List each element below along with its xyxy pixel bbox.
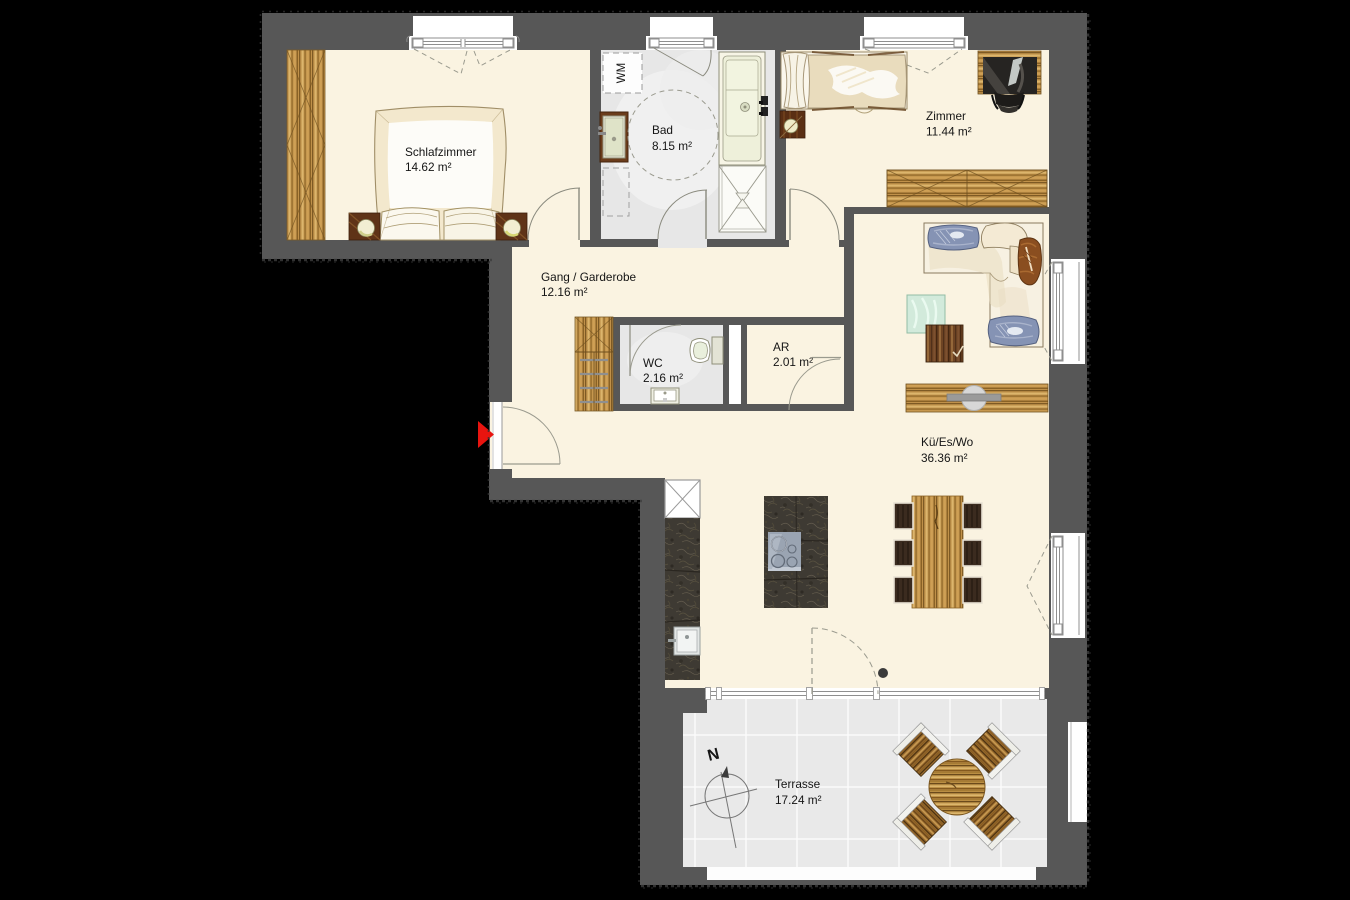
svg-text:11.44 m²: 11.44 m²: [926, 125, 972, 139]
svg-text:WM: WM: [616, 63, 628, 83]
svg-text:Kü/Es/Wo: Kü/Es/Wo: [921, 435, 974, 449]
svg-text:Bad: Bad: [652, 123, 673, 137]
svg-text:8.15 m²: 8.15 m²: [652, 139, 692, 153]
svg-text:2.16 m²: 2.16 m²: [643, 371, 683, 385]
svg-text:14.62 m²: 14.62 m²: [405, 160, 452, 174]
svg-text:Schlafzimmer: Schlafzimmer: [405, 145, 477, 159]
svg-text:Gang / Garderobe: Gang / Garderobe: [541, 270, 637, 284]
svg-text:36.36 m²: 36.36 m²: [921, 451, 968, 465]
svg-text:12.16 m²: 12.16 m²: [541, 285, 588, 299]
svg-text:WC: WC: [643, 356, 663, 370]
svg-text:AR: AR: [773, 340, 789, 354]
svg-text:17.24 m²: 17.24 m²: [775, 793, 822, 807]
svg-text:2.01 m²: 2.01 m²: [773, 355, 813, 369]
svg-text:Terrasse: Terrasse: [775, 777, 821, 791]
svg-text:Zimmer: Zimmer: [926, 109, 966, 123]
